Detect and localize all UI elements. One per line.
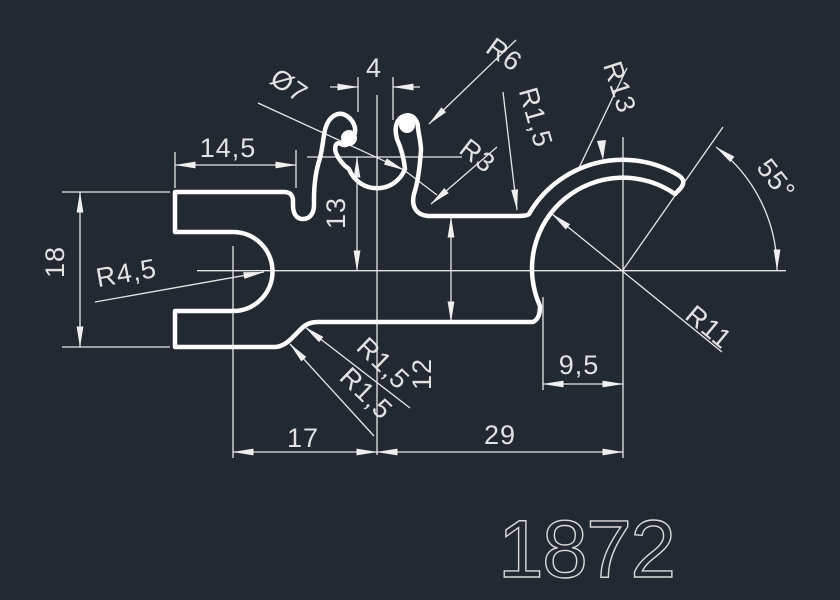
dim-label-hook-end-angle: 55° bbox=[751, 153, 802, 206]
dim-label-right-width: 29 bbox=[484, 420, 516, 450]
dim-label-slot-radius: R4,5 bbox=[94, 253, 159, 293]
left-finger-tip-ball bbox=[341, 130, 357, 146]
dim-label-finger-curl-radius: R6 bbox=[481, 32, 528, 78]
part-number: 1872 bbox=[498, 504, 680, 595]
dim-label-socket-gap: 4 bbox=[366, 53, 382, 83]
dim-label-hook-inner-radius: R11 bbox=[680, 299, 738, 354]
dim-label-mid-width: 17 bbox=[287, 423, 319, 453]
dim-label-socket-diameter: Ø7 bbox=[265, 62, 313, 108]
leader-socket-diameter bbox=[258, 103, 404, 170]
cad-drawing-canvas[interactable]: 14,5 18 R4,5 Ø7 4 R6 R1,5 R3 R13 55° R1,… bbox=[0, 0, 840, 600]
dim-label-socket-center-height: 13 bbox=[321, 197, 351, 229]
dim-label-ledge-fillet: R1,5 bbox=[513, 84, 559, 151]
dim-label-left-height: 18 bbox=[40, 246, 70, 278]
hook-outer-radius-arrow bbox=[597, 140, 606, 160]
dim-label-bend-radius: R3 bbox=[454, 133, 501, 179]
dimension-labels: 14,5 18 R4,5 Ø7 4 R6 R1,5 R3 R13 55° R1,… bbox=[40, 32, 801, 453]
dim-label-hook-outer-radius: R13 bbox=[597, 58, 642, 117]
cad-viewport[interactable]: 14,5 18 R4,5 Ø7 4 R6 R1,5 R3 R13 55° R1,… bbox=[0, 0, 840, 600]
dim-label-hook-offset: 9,5 bbox=[559, 350, 600, 380]
dim-label-top-width: 14,5 bbox=[200, 133, 257, 163]
leader-ledge-fillet bbox=[503, 92, 517, 210]
right-finger-tip-ball bbox=[399, 117, 415, 133]
dim-label-step-height: 12 bbox=[407, 358, 437, 390]
angle-radial-line bbox=[623, 127, 723, 270]
